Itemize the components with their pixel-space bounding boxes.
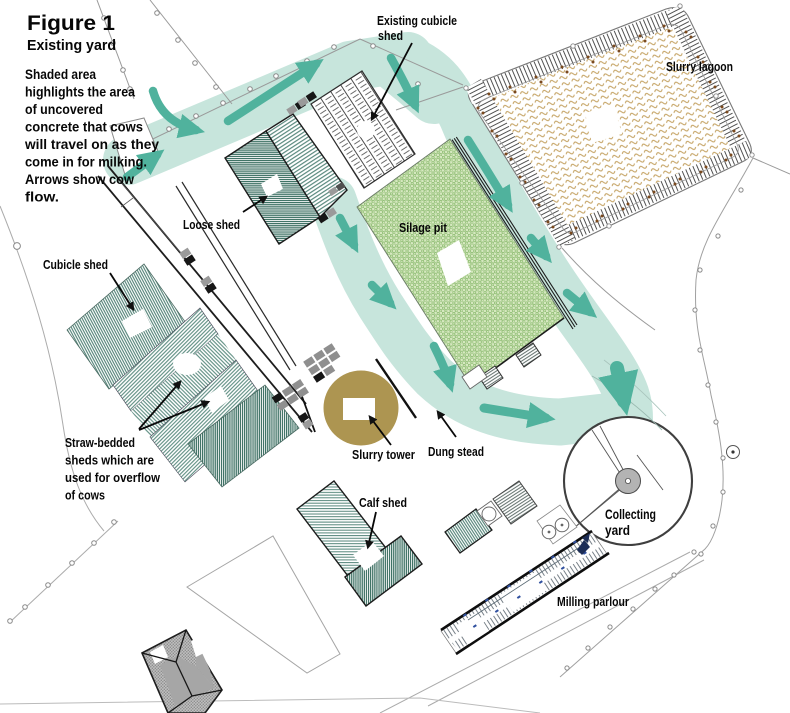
svg-text:Dung stead: Dung stead [428, 444, 484, 459]
svg-text:Existing cubicle: Existing cubicle [377, 13, 457, 28]
svg-text:Straw-bedded: Straw-bedded [65, 435, 135, 450]
svg-text:concrete that cows: concrete that cows [25, 120, 143, 135]
svg-text:Loose shed: Loose shed [183, 217, 240, 232]
svg-text:Collecting: Collecting [605, 506, 656, 522]
svg-text:flow.: flow. [25, 190, 59, 205]
svg-text:shed: shed [378, 28, 403, 43]
svg-text:Milling parlour: Milling parlour [557, 594, 629, 609]
svg-text:Silage pit: Silage pit [399, 220, 448, 235]
svg-text:come in for milking.: come in for milking. [25, 155, 147, 170]
svg-text:Figure 1: Figure 1 [27, 12, 115, 35]
svg-text:Arrows show cow: Arrows show cow [25, 172, 134, 187]
svg-text:will travel on as they: will travel on as they [24, 137, 160, 152]
svg-text:yard: yard [605, 522, 630, 538]
svg-text:Shaded area: Shaded area [25, 67, 96, 82]
svg-text:used for overflow: used for overflow [65, 470, 161, 485]
svg-text:Calf shed: Calf shed [359, 495, 407, 510]
svg-text:of uncovered: of uncovered [25, 102, 103, 117]
svg-text:Slurry lagoon: Slurry lagoon [666, 59, 733, 74]
svg-text:Slurry tower: Slurry tower [352, 447, 415, 462]
svg-text:Cubicle shed: Cubicle shed [43, 257, 108, 272]
svg-text:Existing yard: Existing yard [27, 38, 116, 54]
svg-text:highlights the area: highlights the area [25, 85, 135, 100]
svg-text:sheds which are: sheds which are [65, 453, 154, 468]
svg-text:of cows: of cows [65, 488, 105, 503]
